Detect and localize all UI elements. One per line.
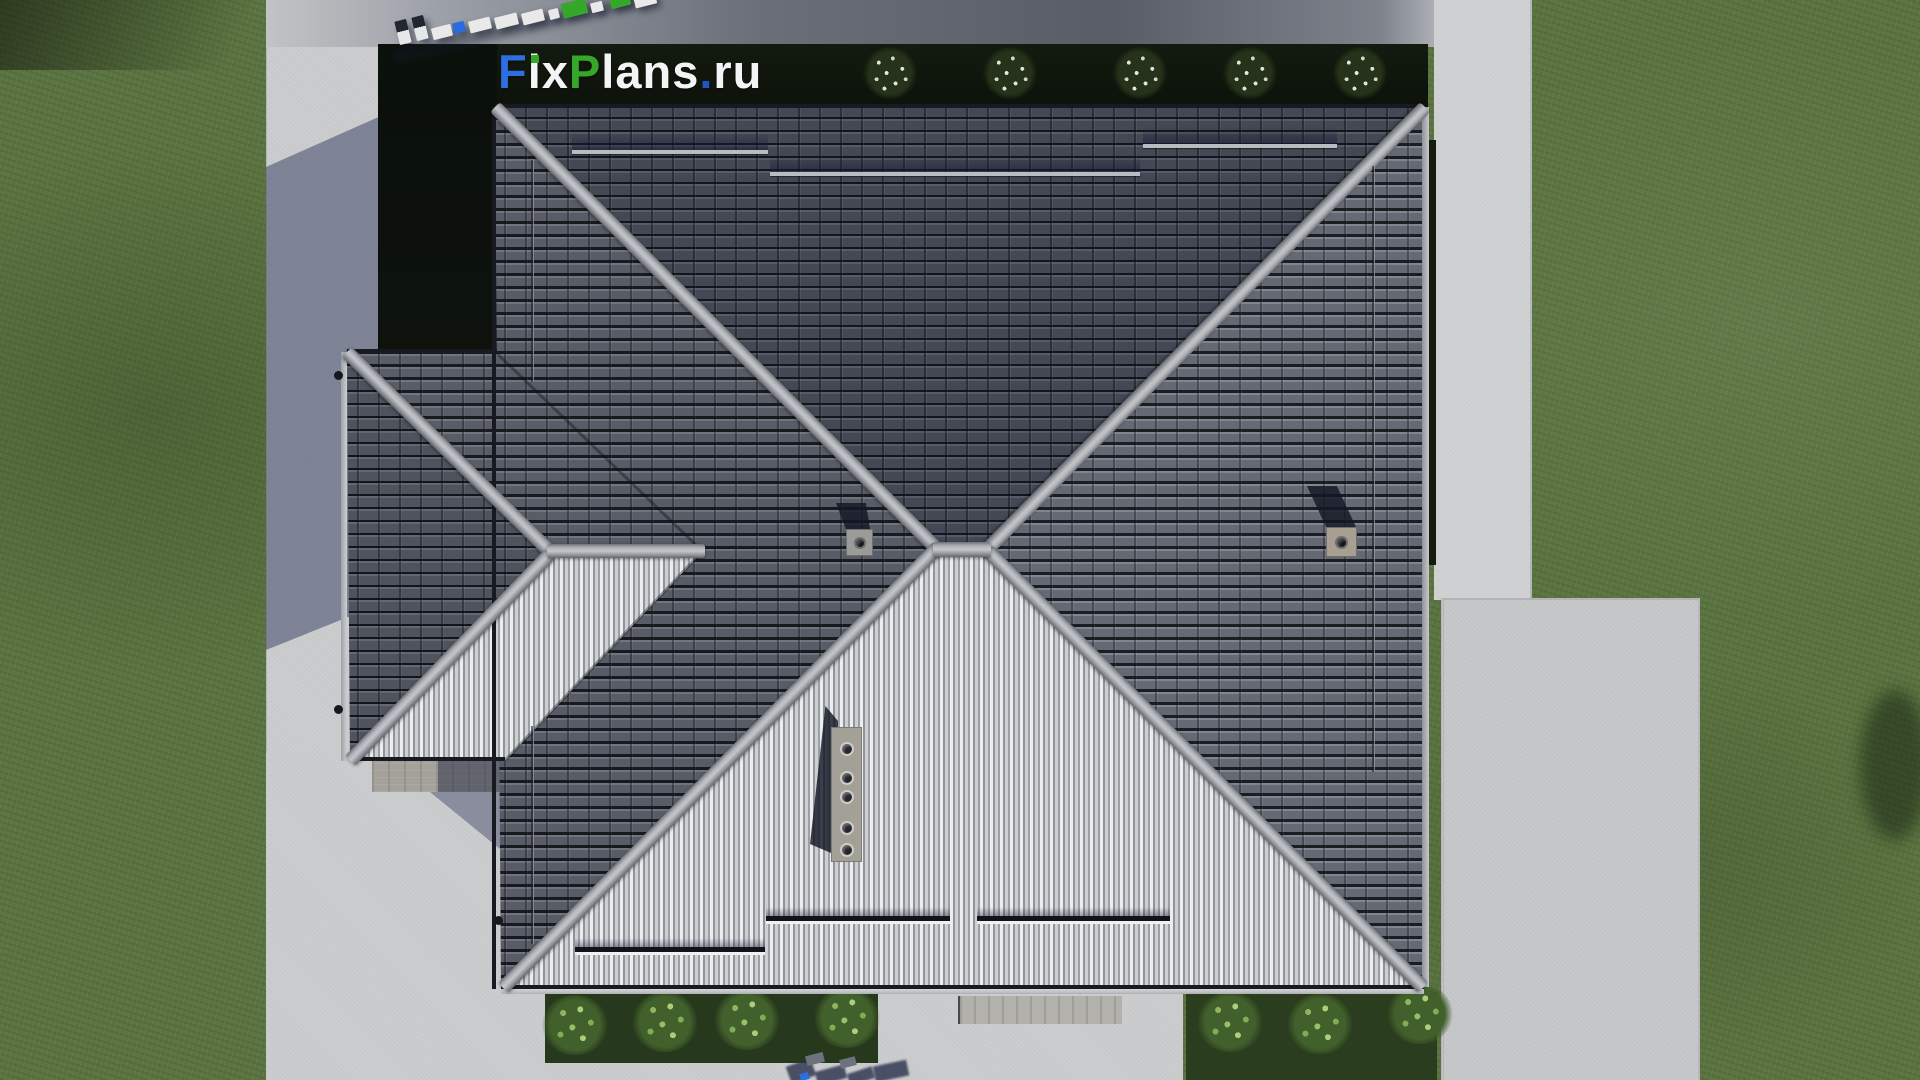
ground-object-shadow — [847, 1066, 875, 1080]
logo-i-dot — [531, 55, 539, 63]
ground-object-shadow — [873, 1060, 910, 1080]
logo-letter: lans — [601, 50, 699, 94]
logo-letter: P — [569, 50, 601, 94]
logo-letter: ru — [713, 50, 762, 94]
logo-letter: i — [528, 50, 542, 94]
logo-letter: . — [699, 50, 713, 94]
aerial-roof-render: FixPlans.ru — [0, 0, 1920, 1080]
fixplans-logo: FixPlans.ru — [498, 50, 762, 98]
ground-object — [805, 1052, 825, 1066]
logo-letter: x — [542, 50, 569, 94]
ground-object — [839, 1056, 857, 1069]
ground-object-blue — [799, 1072, 809, 1080]
bottom-edge-objects — [0, 0, 1920, 1080]
logo-letter: F — [498, 50, 528, 94]
